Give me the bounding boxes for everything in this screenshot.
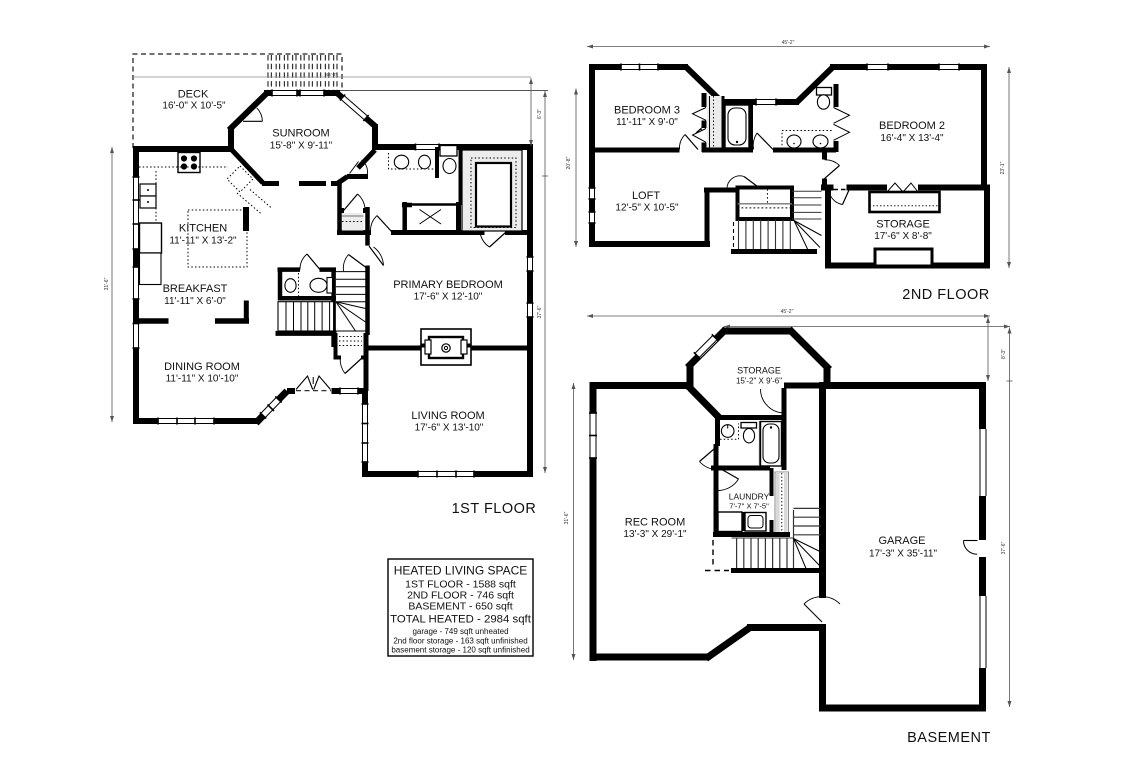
svg-text:BREAKFAST: BREAKFAST: [163, 283, 228, 295]
svg-text:45'-2": 45'-2": [782, 40, 795, 46]
svg-text:DECK: DECK: [178, 89, 209, 101]
svg-text:SUNROOM: SUNROOM: [272, 128, 329, 140]
svg-text:BEDROOM 2: BEDROOM 2: [879, 120, 945, 132]
svg-text:17'-6" X 8'-8": 17'-6" X 8'-8": [874, 231, 932, 242]
svg-text:45'-2": 45'-2": [781, 309, 794, 315]
svg-text:HEATED LIVING SPACE: HEATED LIVING SPACE: [394, 564, 528, 578]
svg-text:16'-4" X 13'-4": 16'-4" X 13'-4": [880, 133, 944, 144]
svg-text:13'-3" X 29'-1": 13'-3" X 29'-1": [623, 529, 687, 540]
svg-text:LOFT: LOFT: [632, 190, 660, 202]
svg-text:2nd floor storage - 163 sqft u: 2nd floor storage - 163 sqft unfinished: [393, 637, 527, 646]
svg-text:BEDROOM 3: BEDROOM 3: [614, 105, 680, 117]
svg-text:31'-6": 31'-6": [564, 511, 570, 524]
svg-text:GARAGE: GARAGE: [878, 535, 925, 547]
svg-text:11'-11" X 6'-0": 11'-11" X 6'-0": [164, 296, 226, 307]
svg-text:7'-7" X 7'-5": 7'-7" X 7'-5": [729, 502, 769, 511]
svg-text:6'-3": 6'-3": [537, 109, 543, 119]
svg-text:basement storage - 120 sqft un: basement storage - 120 sqft unfinished: [391, 646, 529, 655]
svg-text:11'-11" X 10'-10": 11'-11" X 10'-10": [166, 374, 239, 385]
svg-text:31'-6": 31'-6": [104, 277, 110, 290]
svg-text:15'-8" X 9'-11": 15'-8" X 9'-11": [270, 141, 333, 152]
svg-text:BASEMENT: BASEMENT: [907, 730, 991, 746]
svg-text:TOTAL HEATED - 2984 sqft: TOTAL HEATED - 2984 sqft: [390, 614, 532, 626]
svg-text:12'-5" X 10'-5": 12'-5" X 10'-5": [615, 203, 679, 214]
svg-text:16'-0" X 10'-5": 16'-0" X 10'-5": [162, 101, 226, 112]
svg-text:23'-1": 23'-1": [1000, 161, 1006, 174]
svg-text:DINING ROOM: DINING ROOM: [164, 361, 240, 373]
svg-text:11'-11" X 13'-2": 11'-11" X 13'-2": [169, 236, 237, 247]
svg-text:LAUNDRY: LAUNDRY: [729, 492, 770, 502]
svg-text:1ST FLOOR: 1ST FLOOR: [452, 501, 537, 517]
svg-text:2ND FLOOR: 2ND FLOOR: [902, 287, 990, 303]
svg-text:STORAGE: STORAGE: [876, 219, 930, 231]
svg-text:KITCHEN: KITCHEN: [179, 223, 227, 235]
svg-text:17'-6" X 13'-10": 17'-6" X 13'-10": [415, 423, 484, 434]
svg-text:REC ROOM: REC ROOM: [625, 517, 686, 529]
svg-text:20'-8": 20'-8": [566, 156, 572, 169]
svg-text:11'-11" X 9'-0": 11'-11" X 9'-0": [616, 117, 678, 128]
svg-text:STORAGE: STORAGE: [737, 366, 781, 376]
svg-text:17'-3" X 35'-11": 17'-3" X 35'-11": [869, 549, 937, 560]
svg-text:17'-6" X 12'-10": 17'-6" X 12'-10": [414, 292, 483, 303]
svg-text:45'-2": 45'-2": [326, 72, 338, 77]
svg-text:37'-6": 37'-6": [1001, 541, 1007, 554]
svg-text:15'-2" X 9'-6": 15'-2" X 9'-6": [736, 377, 782, 386]
svg-text:8'-3": 8'-3": [1001, 349, 1007, 359]
svg-text:PRIMARY BEDROOM: PRIMARY BEDROOM: [393, 279, 503, 291]
svg-text:garage - 749 sqft unheated: garage - 749 sqft unheated: [412, 627, 508, 636]
svg-text:37'-6": 37'-6": [537, 305, 543, 318]
svg-text:BASEMENT - 650 sqft: BASEMENT - 650 sqft: [408, 601, 512, 613]
svg-text:LIVING ROOM: LIVING ROOM: [411, 410, 484, 422]
